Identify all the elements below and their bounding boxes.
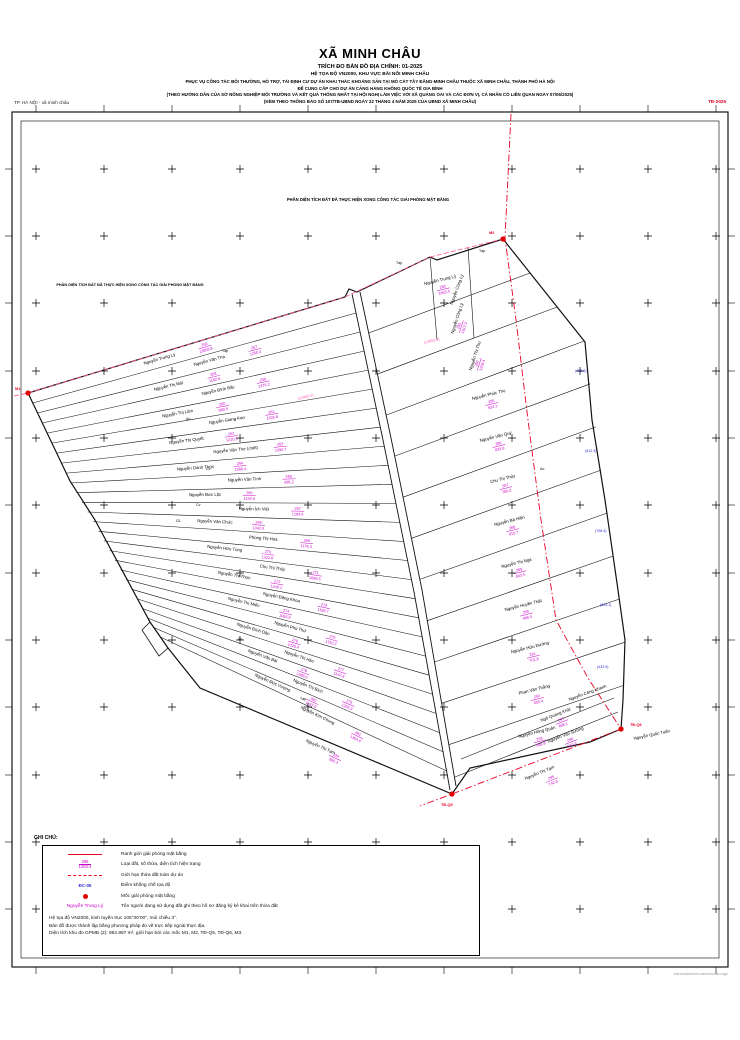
parcel-number-label: 2571250.4 xyxy=(247,344,262,357)
owner-name-label: Nguyễn Đăng Khoa xyxy=(263,591,301,604)
column-parcel-labels: Nguyễn Trung Lý2822455.6Nguyễn Công Lý28… xyxy=(424,273,557,748)
svg-text:1089.5: 1089.5 xyxy=(309,576,321,582)
owner-name-label: Nguyễn Thị Tạm xyxy=(305,738,336,756)
parcel-number-label: 295742.6 xyxy=(544,773,560,787)
survey-marker-dot xyxy=(500,236,505,241)
svg-text:1068.4: 1068.4 xyxy=(234,467,246,472)
svg-text:272: 272 xyxy=(274,579,281,584)
owner-name-icon: Nguyễn Trung Lý xyxy=(49,904,121,909)
owner-name-label: Nguyễn Bá Hiền xyxy=(494,514,526,527)
control-icon: ĐC-05 xyxy=(49,883,121,888)
svg-text:995.2: 995.2 xyxy=(284,480,294,484)
land-type-codes: TạpTạpTạpAoCvCvG1AoTạpAo xyxy=(176,249,544,701)
fraction-icon: 2561250.4 xyxy=(49,860,121,870)
parcel-number-label: 2721240.1 xyxy=(269,578,283,590)
parcel-number-label: 293588.9 xyxy=(533,735,548,748)
parcel-number-label: 2621210.3 xyxy=(224,431,238,442)
svg-text:(524.1): (524.1) xyxy=(600,603,611,607)
large-area-labels: (13859.8)(12460.5) xyxy=(297,337,440,401)
legend-rows: Ranh giới giải phóng mặt bằng2561250.4Lo… xyxy=(49,849,473,912)
parcel-number-label: 2641068.4 xyxy=(233,461,247,472)
svg-text:264: 264 xyxy=(237,461,244,465)
map-sheet: XÃ MINH CHÂU TRÍCH ĐO BẢN ĐỒ ĐỊA CHÍNH: … xyxy=(0,0,740,1040)
legend-item: Ranh giới giải phóng mặt bằng xyxy=(49,849,473,860)
svg-text:(13859.8): (13859.8) xyxy=(423,337,440,345)
owner-name-label: Nguyễn Văn Thơ (chết) xyxy=(213,445,259,454)
svg-text:1210.3: 1210.3 xyxy=(226,437,238,442)
svg-text:1240.1: 1240.1 xyxy=(270,584,282,590)
svg-text:1042.0: 1042.0 xyxy=(252,526,264,531)
svg-text:283: 283 xyxy=(456,322,462,329)
red-dash-icon xyxy=(49,875,121,876)
parcel-number-label: 2581182.6 xyxy=(207,371,222,384)
parcel-number-label: 2701322.8 xyxy=(261,549,275,560)
legend-item-label: Điểm khống chế tọa độ xyxy=(121,883,170,888)
svg-text:PHẦN DIỆN TÍCH ĐẤT ĐÃ THỰC HIỆ: PHẦN DIỆN TÍCH ĐẤT ĐÃ THỰC HIỆN XONG CÔN… xyxy=(56,282,203,287)
owner-name-label: Nguyễn Văn Tình xyxy=(228,476,262,482)
svg-text:1158.7: 1158.7 xyxy=(317,608,329,614)
svg-text:833.9: 833.9 xyxy=(495,446,505,452)
owner-name-label: Nguyễn Đức Lộc xyxy=(189,492,222,497)
parcel-number-label: 2751310.2 xyxy=(324,634,339,647)
parcel-number-label: 2691176.3 xyxy=(300,538,314,549)
note-area-summary: Diện tích khu đo GPMB (2): 982.887 m², g… xyxy=(49,931,473,936)
owner-name-label: Nguyễn Phúc Thọ xyxy=(471,388,506,401)
svg-text:Tạp: Tạp xyxy=(222,349,228,353)
svg-text:(12460.5): (12460.5) xyxy=(297,393,314,401)
survey-marker-dot xyxy=(25,390,30,395)
svg-text:261: 261 xyxy=(268,410,275,415)
svg-text:1476.2: 1476.2 xyxy=(258,382,270,388)
parcel-number-label: 290968.0 xyxy=(519,609,534,622)
owner-name-label: Nguyễn Thị Mùi xyxy=(153,380,183,392)
svg-text:267: 267 xyxy=(295,507,301,511)
svg-text:742.6: 742.6 xyxy=(548,780,558,787)
parcel-number-label: 2591476.2 xyxy=(256,377,271,389)
parcel-number-label: 288915.7 xyxy=(505,524,520,537)
svg-text:Cv: Cv xyxy=(196,503,201,507)
svg-text:1208.4: 1208.4 xyxy=(479,359,486,371)
file-credit-text: bandodiachinh-xaminhchau.dgn xyxy=(674,972,728,976)
parcel-number-label: 2611035.8 xyxy=(265,409,279,421)
legend-item-label: Mốc giải phóng mặt bằng xyxy=(121,894,175,899)
parcel-number-label: 286833.9 xyxy=(492,440,507,453)
parcel-number-label: 2631390.7 xyxy=(274,442,288,453)
owner-name-label: Chu Thị Thủy xyxy=(259,563,286,572)
owner-name-label: Nguyễn Phú Thứ xyxy=(274,620,307,633)
svg-text:Ao: Ao xyxy=(540,467,544,471)
svg-text:271: 271 xyxy=(312,570,319,575)
svg-text:1284.9: 1284.9 xyxy=(292,512,304,516)
owner-name-label: Nguyễn Thị Nga xyxy=(501,557,533,569)
svg-text:277: 277 xyxy=(337,667,344,673)
owner-name-label: Nguyễn Thị Bích xyxy=(293,678,325,695)
owner-name-label: Nguyễn Trung Lý xyxy=(424,273,458,286)
note-coordinate-system: Hệ tọa độ VN2000, kinh tuyến trục 105°00… xyxy=(49,916,473,921)
parcel-number-label: 2711089.5 xyxy=(308,570,322,582)
parcel-boundaries xyxy=(28,239,625,794)
owner-name-label: Nguyễn Thị Quyết xyxy=(169,436,205,445)
legend-item: 2561250.4Loại đất, số thửa, diện tích hi… xyxy=(49,860,473,871)
svg-text:Cv: Cv xyxy=(206,467,211,471)
svg-text:760.2: 760.2 xyxy=(502,488,512,494)
parcel-number-label: 2731158.7 xyxy=(316,602,331,614)
legend-item-label: Giới hạn thửa đất toàn dự án xyxy=(121,873,183,878)
legend-notes: Hệ tọa độ VN2000, kinh tuyến trục 105°00… xyxy=(49,916,473,936)
owner-name-label: Nguyễn Thị Thực xyxy=(218,570,252,581)
owner-name-label: Nguyễn Văn Bái xyxy=(247,648,278,664)
svg-text:Ao: Ao xyxy=(238,637,242,641)
svg-text:(612.3): (612.3) xyxy=(585,449,596,453)
extra-parcel-labels: Nguyễn Công LýNguyễn Thị TạmNguyễn Thị T… xyxy=(305,273,671,788)
red-line-icon xyxy=(49,854,121,855)
legend-item: Nguyễn Trung LýTên người đang sử dụng đấ… xyxy=(49,902,473,913)
owner-name-label: Nguyễn Hữu Tùng xyxy=(207,544,243,553)
parcel-number-label: 287760.2 xyxy=(499,482,514,495)
svg-text:1612.3: 1612.3 xyxy=(461,322,468,334)
svg-text:PHẦN DIỆN TÍCH ĐẤT ĐÃ THỰC HIỆ: PHẦN DIỆN TÍCH ĐẤT ĐÃ THỰC HIỆN XONG CÔN… xyxy=(287,197,449,202)
svg-text:655.4: 655.4 xyxy=(533,699,543,705)
owner-name-label: Chu Thị Thủy xyxy=(489,473,516,484)
svg-text:Tạp: Tạp xyxy=(479,249,485,253)
project-limit-line xyxy=(420,114,621,806)
parcel-number-label: 2791265.3 xyxy=(340,697,356,711)
owner-name-label: Phùng Thị Hoa xyxy=(249,535,278,542)
svg-text:(433.9): (433.9) xyxy=(597,665,608,669)
svg-text:842.5: 842.5 xyxy=(516,573,526,579)
svg-text:Tạp: Tạp xyxy=(396,261,402,265)
parcel-number-label: 265995.2 xyxy=(282,474,295,484)
owner-name-label: Nguyễn Văn Tha xyxy=(193,354,226,367)
svg-text:915.7: 915.7 xyxy=(509,530,519,536)
strip-parcel-labels: Nguyễn Trung Lý25613859.8Nguyễn Văn Tha2… xyxy=(143,341,365,744)
svg-text:1035.8: 1035.8 xyxy=(266,415,278,421)
svg-text:268: 268 xyxy=(255,520,262,524)
svg-text:G1: G1 xyxy=(176,519,181,523)
svg-text:701.8: 701.8 xyxy=(529,657,539,663)
owner-name-label: Nguyễn Ích Việt xyxy=(239,506,270,512)
svg-text:Ao: Ao xyxy=(186,417,190,421)
svg-text:284: 284 xyxy=(474,360,480,367)
owner-name-label: Nguyễn Kim Chung xyxy=(300,705,336,726)
legend-item: ĐC-05Điểm khống chế tọa độ xyxy=(49,881,473,892)
legend-item-label: Tên người đang sử dụng đất ghi theo hồ s… xyxy=(121,904,278,909)
survey-marker-dot xyxy=(618,726,623,731)
survey-marker-label: TĐ-Q6 xyxy=(630,722,643,727)
parcel-number-label: 2661150.6 xyxy=(243,491,256,501)
survey-marker-label: TĐ-Q5 xyxy=(441,802,454,807)
svg-text:265: 265 xyxy=(286,474,293,478)
parcel-number-label: 25613859.8 xyxy=(197,341,213,354)
owner-name-label: Nguyễn Văn Chức xyxy=(197,518,233,525)
svg-text:1322.8: 1322.8 xyxy=(261,555,273,560)
svg-text:924.1: 924.1 xyxy=(488,404,498,410)
svg-text:1176.3: 1176.3 xyxy=(300,544,312,549)
svg-text:1150.6: 1150.6 xyxy=(244,497,255,501)
parcel-number-label: 294865.2 xyxy=(327,751,343,765)
svg-text:980.5: 980.5 xyxy=(218,407,228,413)
note-survey-method: Bản đồ được thành lập bằng phương pháp đ… xyxy=(49,924,473,929)
parcel-number-label: 292655.4 xyxy=(530,693,545,706)
parcel-number-label: 297498.1 xyxy=(554,716,570,730)
legend-item-label: Loại đất, số thửa, diện tích hiện trạng xyxy=(121,862,200,867)
grid-crosses xyxy=(32,165,720,913)
legend-item: Giới hạn thửa đất toàn dự án xyxy=(49,870,473,881)
owner-name-label: Nguyễn Giang Kao xyxy=(208,415,245,426)
parcel-number-label: 260980.5 xyxy=(216,401,231,413)
svg-text:(455.6): (455.6) xyxy=(575,369,586,373)
parcel-number-label: 2671284.9 xyxy=(291,507,304,517)
clearance-annotations: PHẦN DIỆN TÍCH ĐẤT ĐÃ THỰC HIỆN XONG CÔN… xyxy=(56,197,449,287)
owner-name-label: Phan Văn Thắng xyxy=(518,683,551,696)
legend-heading: GHI CHÚ: xyxy=(34,835,58,841)
legend-box: Ranh giới giải phóng mặt bằng2561250.4Lo… xyxy=(42,845,480,956)
legend-item-label: Ranh giới giải phóng mặt bằng xyxy=(121,852,187,857)
parcel-number-label: 2822455.6 xyxy=(436,283,451,296)
svg-text:262: 262 xyxy=(228,432,235,437)
svg-text:588.9: 588.9 xyxy=(536,742,546,748)
red-dot-icon xyxy=(49,894,121,899)
parcel-number-label: 2741065.9 xyxy=(278,608,293,621)
legend-item: Mốc giải phóng mặt bằng xyxy=(49,891,473,902)
residual-area-labels: (455.6)(612.3)(708.4)(524.1)(433.9) xyxy=(575,369,611,669)
parcel-number-label: 2681042.0 xyxy=(252,520,265,530)
svg-text:266: 266 xyxy=(246,491,252,495)
gpmb-boundary-line xyxy=(14,239,503,396)
svg-text:(708.4): (708.4) xyxy=(595,529,606,533)
svg-text:270: 270 xyxy=(265,550,272,555)
owner-name-label: Nguyễn Đình Dân xyxy=(236,621,271,636)
survey-marker-dot xyxy=(449,791,454,796)
survey-marker-label: M2 xyxy=(489,230,495,235)
svg-text:Tạp: Tạp xyxy=(300,697,306,701)
owner-name-label: Nguyễn Văn Quý xyxy=(479,430,513,443)
owner-name-label: Nguyễn Quốc Tuấn xyxy=(633,728,671,741)
owner-name-label: Nguyễn Đình Bắc xyxy=(201,384,236,396)
svg-text:263: 263 xyxy=(277,442,284,447)
svg-text:1390.7: 1390.7 xyxy=(275,448,287,453)
svg-text:968.0: 968.0 xyxy=(522,615,532,621)
svg-text:1225.4: 1225.4 xyxy=(287,643,299,650)
survey-marker-label: M1 xyxy=(15,386,21,391)
parcel-number-label: 285924.1 xyxy=(485,398,500,411)
parcel-number-label: 291701.8 xyxy=(526,651,541,664)
svg-text:269: 269 xyxy=(303,538,310,542)
